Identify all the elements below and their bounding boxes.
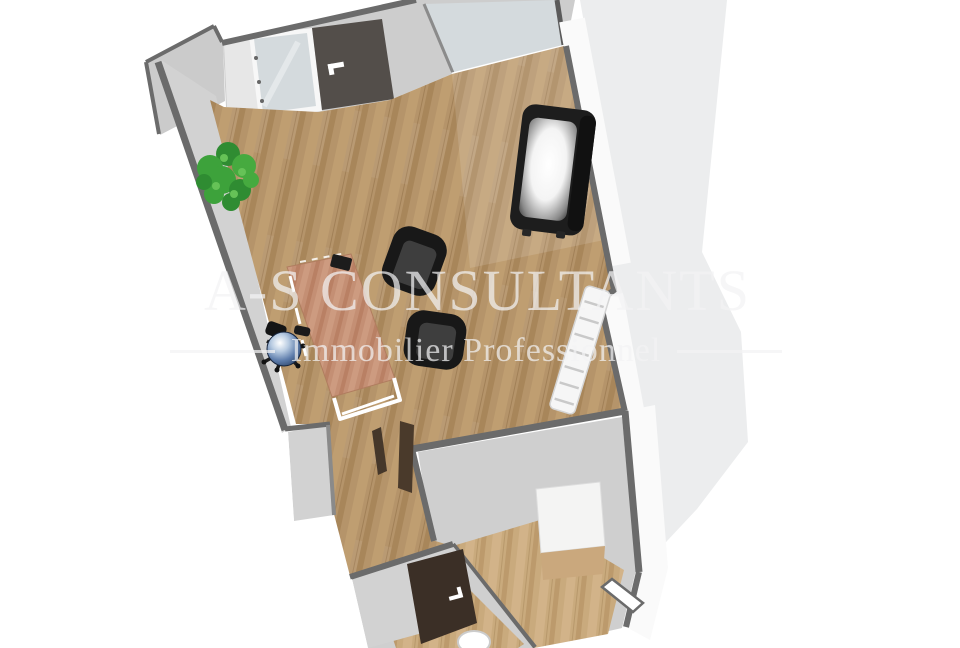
door-hinge-icon (260, 99, 264, 103)
plant-leaf (196, 174, 212, 190)
alcove (272, 424, 334, 527)
plant-leaf (238, 168, 246, 176)
top-door (312, 19, 394, 110)
corridor-open-door (398, 421, 414, 493)
plant-leaf (230, 190, 238, 198)
shower-box-top (536, 482, 605, 553)
toilet (458, 631, 490, 648)
armchair-2 (401, 308, 468, 372)
plant-leaf (243, 172, 259, 188)
plant-leaf (220, 154, 228, 162)
chair-seat (267, 332, 301, 366)
door-hinge-icon (254, 56, 258, 60)
door-hinge-icon (257, 80, 261, 84)
floorplan-page: A-S CONSULTANTS Immobilier Professionnel (0, 0, 960, 648)
plant-leaf (212, 182, 220, 190)
floorplan-3d-render (0, 0, 960, 648)
